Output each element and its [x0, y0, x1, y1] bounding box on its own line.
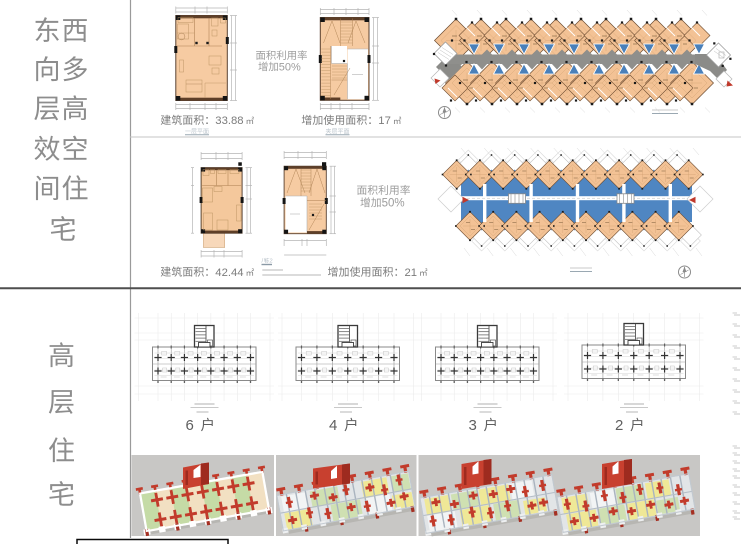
svg-text:6: 6: [186, 417, 194, 434]
svg-text:3: 3: [469, 417, 477, 434]
svg-text:2: 2: [615, 417, 623, 434]
svg-text:八: 八: [261, 259, 267, 265]
svg-text:4: 4: [329, 417, 337, 434]
svg-text:33.88: 33.88: [215, 115, 243, 127]
svg-text:42.44: 42.44: [215, 267, 243, 279]
svg-text:17: 17: [378, 115, 391, 127]
svg-text:2: 2: [270, 259, 273, 265]
svg-text:50%: 50%: [279, 61, 301, 73]
svg-text:21: 21: [405, 267, 418, 279]
svg-text:50%: 50%: [382, 197, 405, 209]
